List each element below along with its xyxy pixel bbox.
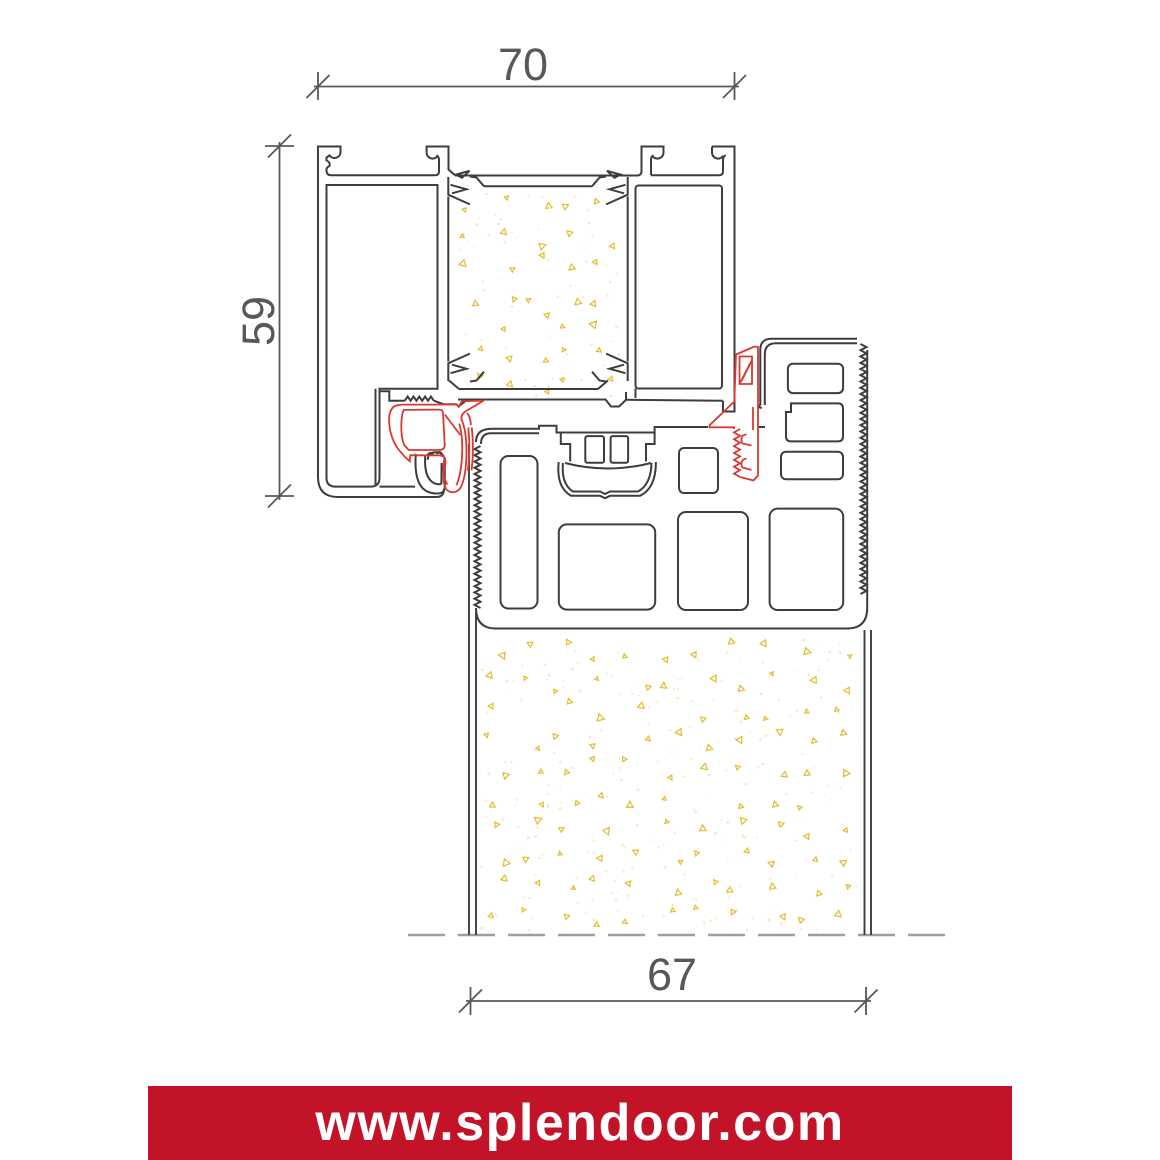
svg-text:59: 59 (233, 296, 284, 346)
svg-text:70: 70 (498, 39, 548, 90)
svg-text:67: 67 (647, 949, 697, 1000)
